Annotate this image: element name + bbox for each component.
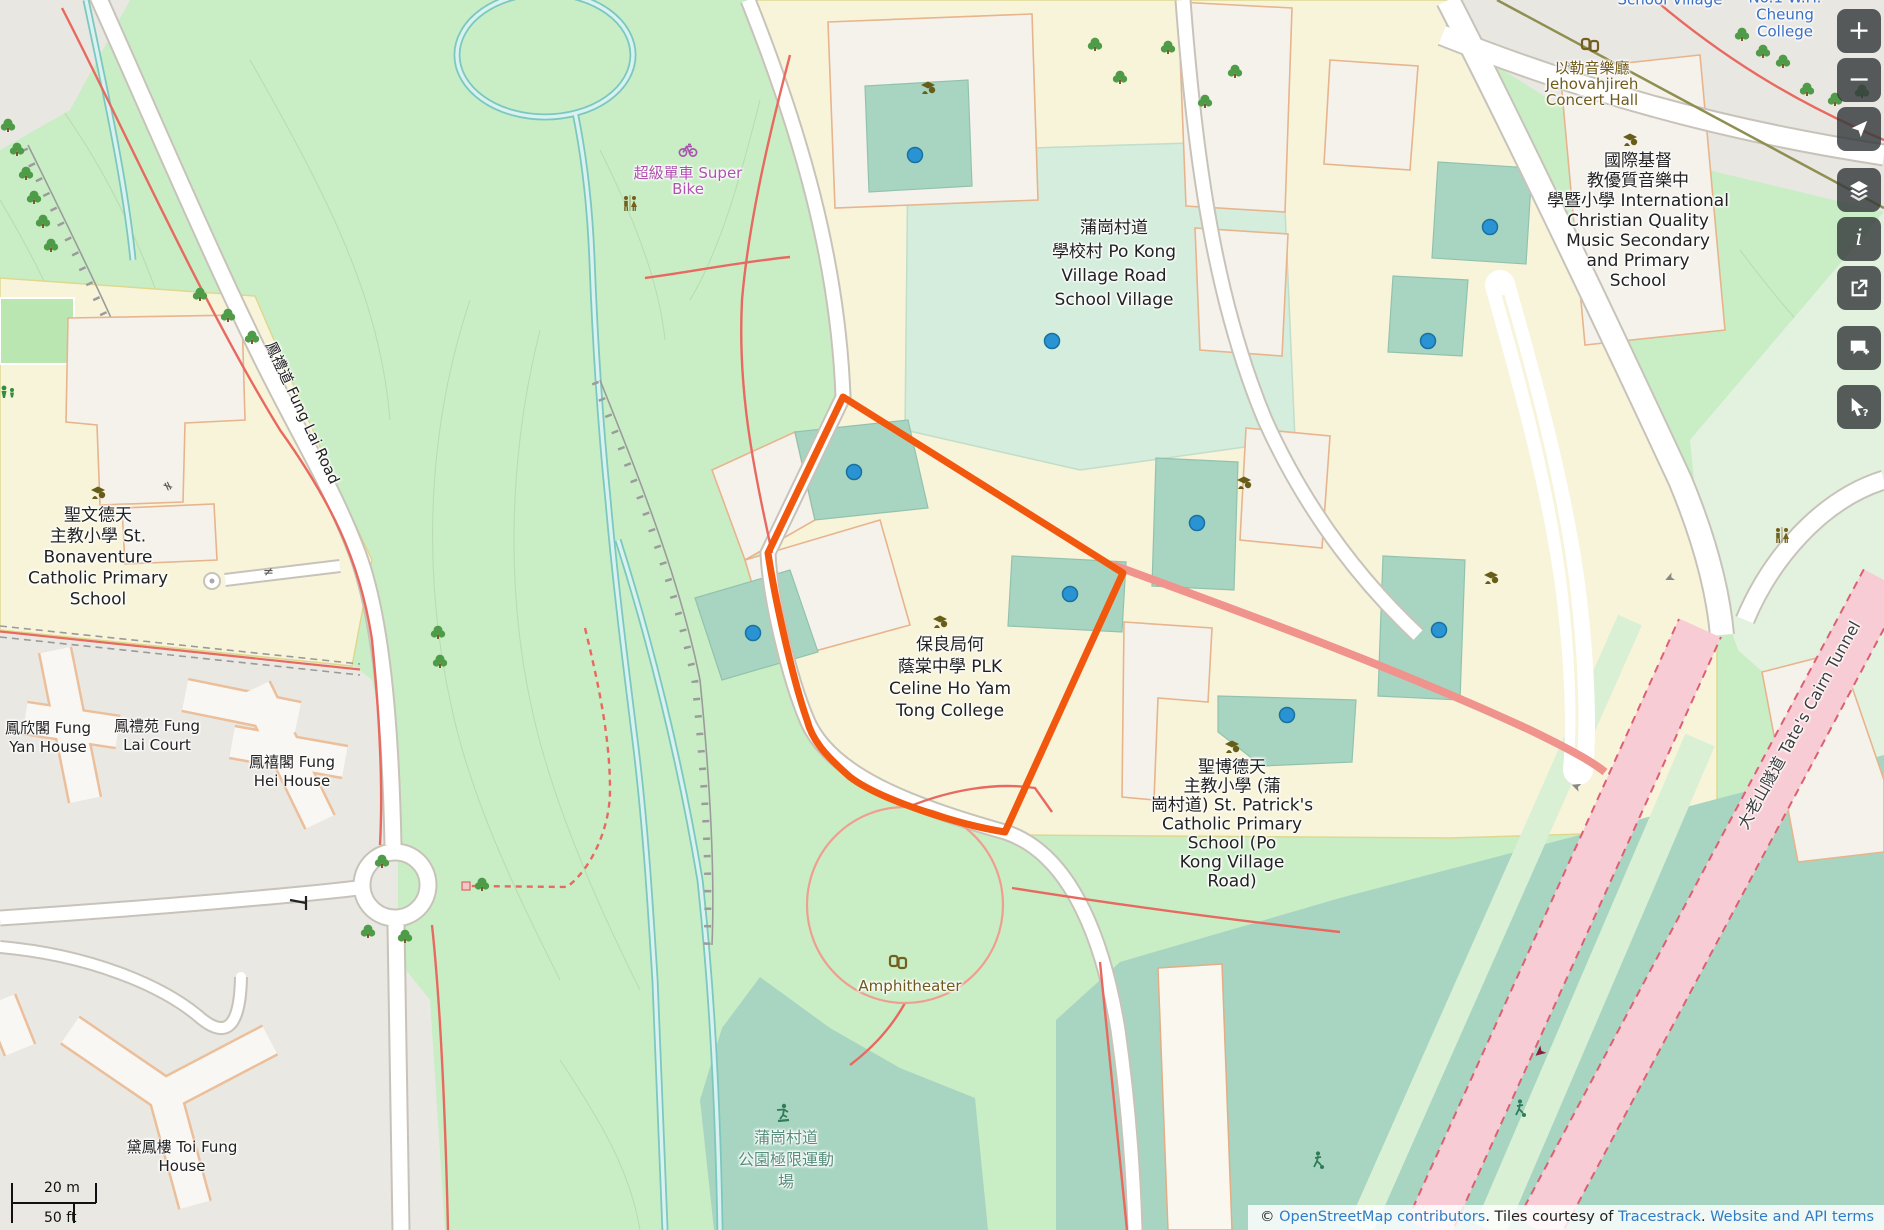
layers-button[interactable] xyxy=(1837,168,1881,212)
osm-contributors-link[interactable]: OpenStreetMap contributors xyxy=(1279,1209,1485,1225)
zoom-out-button[interactable]: − xyxy=(1837,58,1881,102)
zoom-in-button[interactable]: + xyxy=(1837,9,1881,53)
share-icon xyxy=(1849,278,1869,298)
query-cursor-icon: ? xyxy=(1848,396,1870,418)
playground-pitch xyxy=(0,298,74,364)
query-features-button[interactable]: ? xyxy=(1837,385,1881,429)
map-key-button[interactable]: i xyxy=(1837,217,1881,261)
note-controls xyxy=(1837,326,1881,370)
attribution-period: . xyxy=(1701,1209,1710,1225)
attribution-middle: . Tiles courtesy of xyxy=(1485,1209,1618,1225)
terms-link[interactable]: Website and API terms xyxy=(1710,1209,1874,1225)
locate-button[interactable] xyxy=(1837,107,1881,151)
map-canvas[interactable]: ≠ ≠ ≠ ➤ ➤ ➤ xyxy=(0,0,1884,1230)
note-icon xyxy=(1848,337,1870,359)
locate-icon xyxy=(1849,119,1869,139)
layers-icon xyxy=(1848,179,1870,201)
tracestrack-link[interactable]: Tracestrack xyxy=(1618,1209,1701,1225)
svg-text:≠: ≠ xyxy=(263,565,274,580)
map-viewport[interactable]: ≠ ≠ ≠ ➤ ➤ ➤ xyxy=(0,0,1884,1230)
attribution-bar: © OpenStreetMap contributors. Tiles cour… xyxy=(1248,1205,1884,1230)
svg-text:?: ? xyxy=(1863,408,1869,418)
query-controls: ? xyxy=(1837,385,1881,429)
add-note-button[interactable] xyxy=(1837,326,1881,370)
share-button[interactable] xyxy=(1837,266,1881,310)
court-strip xyxy=(1158,964,1232,1230)
attribution-copyright: © xyxy=(1260,1209,1279,1225)
layer-controls: i xyxy=(1837,168,1881,310)
zoom-controls: + − xyxy=(1837,9,1881,151)
